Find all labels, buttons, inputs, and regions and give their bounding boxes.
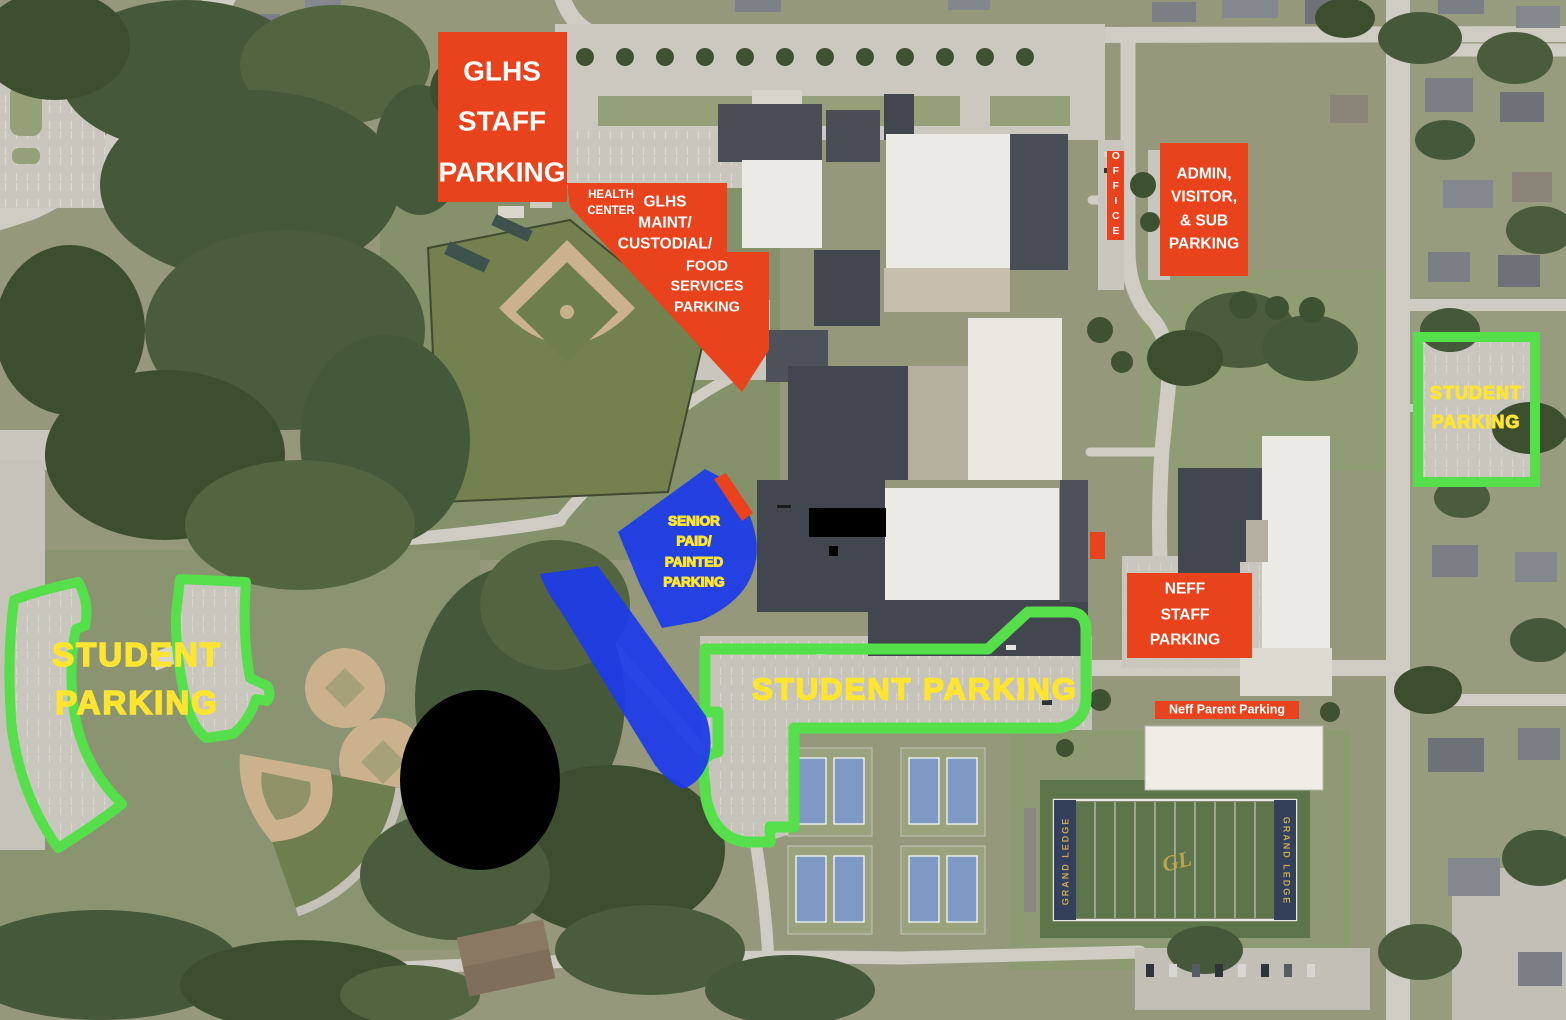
senior-line2: PAID/ [663,532,724,552]
food-line3: PARKING [670,297,743,317]
student-parking-center-label: STUDENT PARKING [752,667,1078,710]
admin-line2: VISITOR, [1169,186,1239,209]
admin-visitor-sub-label: ADMIN, VISITOR, & SUB PARKING [1169,163,1239,256]
campus-parking-map: GLHS STAFF PARKING HEALTH CENTER GLHS MA… [0,0,1566,1020]
food-line1: FOOD [670,257,743,277]
student-parking-left-label: STUDENT PARKING [52,631,222,727]
maint-line1: GLHS [618,193,712,214]
neff-line2: STAFF [1150,602,1220,628]
glhs-staff-line1: GLHS [438,46,565,96]
student-right-line2: PARKING [1430,408,1522,437]
senior-line3: PAINTED [663,552,724,572]
small-red-marker [1090,532,1105,559]
maint-line2: MAINT/ [618,214,712,235]
endzone-right-label: GRAND LEDGE [1280,817,1293,906]
glhs-staff-parking-label: GLHS STAFF PARKING [438,46,565,197]
glhs-staff-line2: STAFF [438,97,565,147]
student-left-line2: PARKING [52,679,222,727]
student-right-line1: STUDENT [1430,379,1522,408]
aerial-base-map [0,0,1566,1020]
food-line2: SERVICES [670,277,743,297]
neff-parent-text: Neff Parent Parking [1169,701,1285,719]
office-label: OFFICE [1108,150,1123,240]
athletic-building [1145,726,1323,790]
student-parking-right-label: STUDENT PARKING [1430,379,1522,437]
student-center-text: STUDENT PARKING [752,667,1078,710]
food-services-label: FOOD SERVICES PARKING [670,257,743,318]
neff-line3: PARKING [1150,628,1220,654]
admin-line1: ADMIN, [1169,163,1239,186]
student-left-line1: STUDENT [52,631,222,679]
glhs-staff-line3: PARKING [438,147,565,197]
maint-custodial-label: GLHS MAINT/ CUSTODIAL/ [618,193,712,256]
office-text: OFFICE [1108,150,1123,240]
endzone-right-text: GRAND LEDGE [1280,817,1293,906]
neff-staff-parking-label: NEFF STAFF PARKING [1150,577,1220,654]
senior-paid-painted-label: SENIOR PAID/ PAINTED PARKING [663,512,724,593]
admin-line3: & SUB [1169,209,1239,232]
neff-line1: NEFF [1150,577,1220,603]
endzone-left-text: GRAND LEDGE [1060,817,1073,906]
school-buildings [718,90,1088,656]
endzone-left-label: GRAND LEDGE [1060,817,1073,906]
maint-line3: CUSTODIAL/ [618,234,712,255]
admin-line4: PARKING [1169,232,1239,255]
senior-line4: PARKING [663,572,724,592]
neff-parent-parking-label: Neff Parent Parking [1169,701,1285,719]
senior-line1: SENIOR [663,512,724,532]
